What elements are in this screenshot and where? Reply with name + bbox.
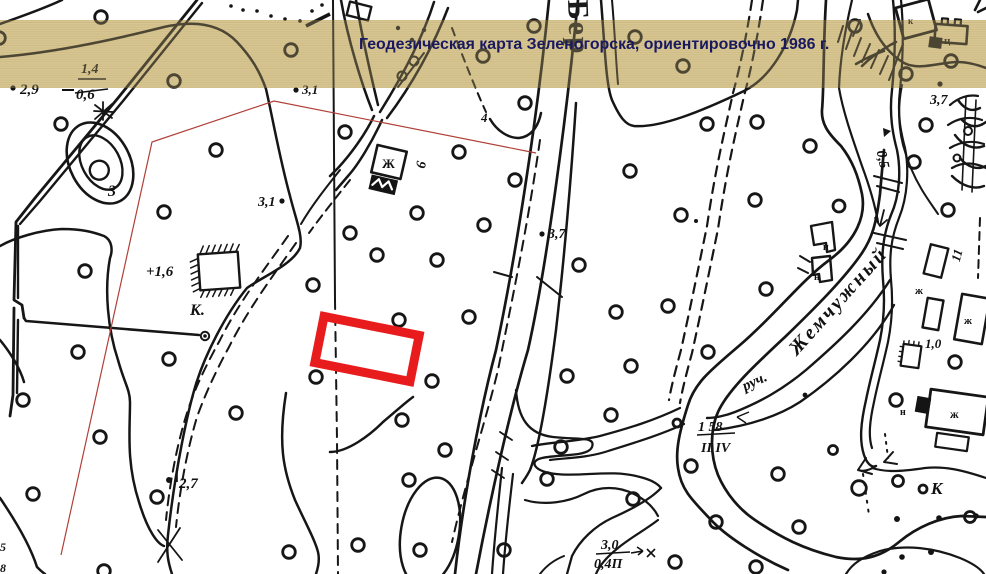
svg-text:н: н [900, 407, 906, 418]
svg-text:3: 3 [107, 183, 116, 200]
svg-text:8: 8 [0, 561, 6, 574]
svg-text:2,7: 2,7 [178, 476, 198, 492]
svg-text:0,6: 0,6 [76, 87, 95, 103]
svg-text:К.: К. [189, 302, 205, 319]
svg-text:4: 4 [480, 110, 488, 125]
svg-text:1,0: 1,0 [925, 336, 942, 351]
svg-text:н: н [814, 272, 820, 283]
svg-text:ж: ж [964, 315, 972, 327]
svg-text:3,0: 3,0 [600, 538, 619, 553]
svg-text:+1,6: +1,6 [146, 264, 174, 280]
svg-text:Геодезическая карта Зеленогорс: Геодезическая карта Зеленогорска, ориент… [359, 36, 829, 53]
svg-text:ж: ж [950, 407, 959, 421]
svg-text:II IV: II IV [700, 441, 732, 456]
svg-text:ж: ж [915, 285, 923, 297]
svg-text:3,1: 3,1 [257, 195, 276, 210]
svg-text:5: 5 [0, 540, 6, 554]
svg-text:Ж: Ж [382, 156, 395, 171]
svg-text:3,7: 3,7 [929, 93, 949, 108]
svg-text:н: н [823, 242, 829, 253]
svg-text:3,7: 3,7 [547, 227, 567, 242]
svg-text:1 58: 1 58 [698, 420, 723, 435]
svg-text:0,4П: 0,4П [594, 557, 624, 572]
svg-text:К: К [930, 479, 944, 498]
